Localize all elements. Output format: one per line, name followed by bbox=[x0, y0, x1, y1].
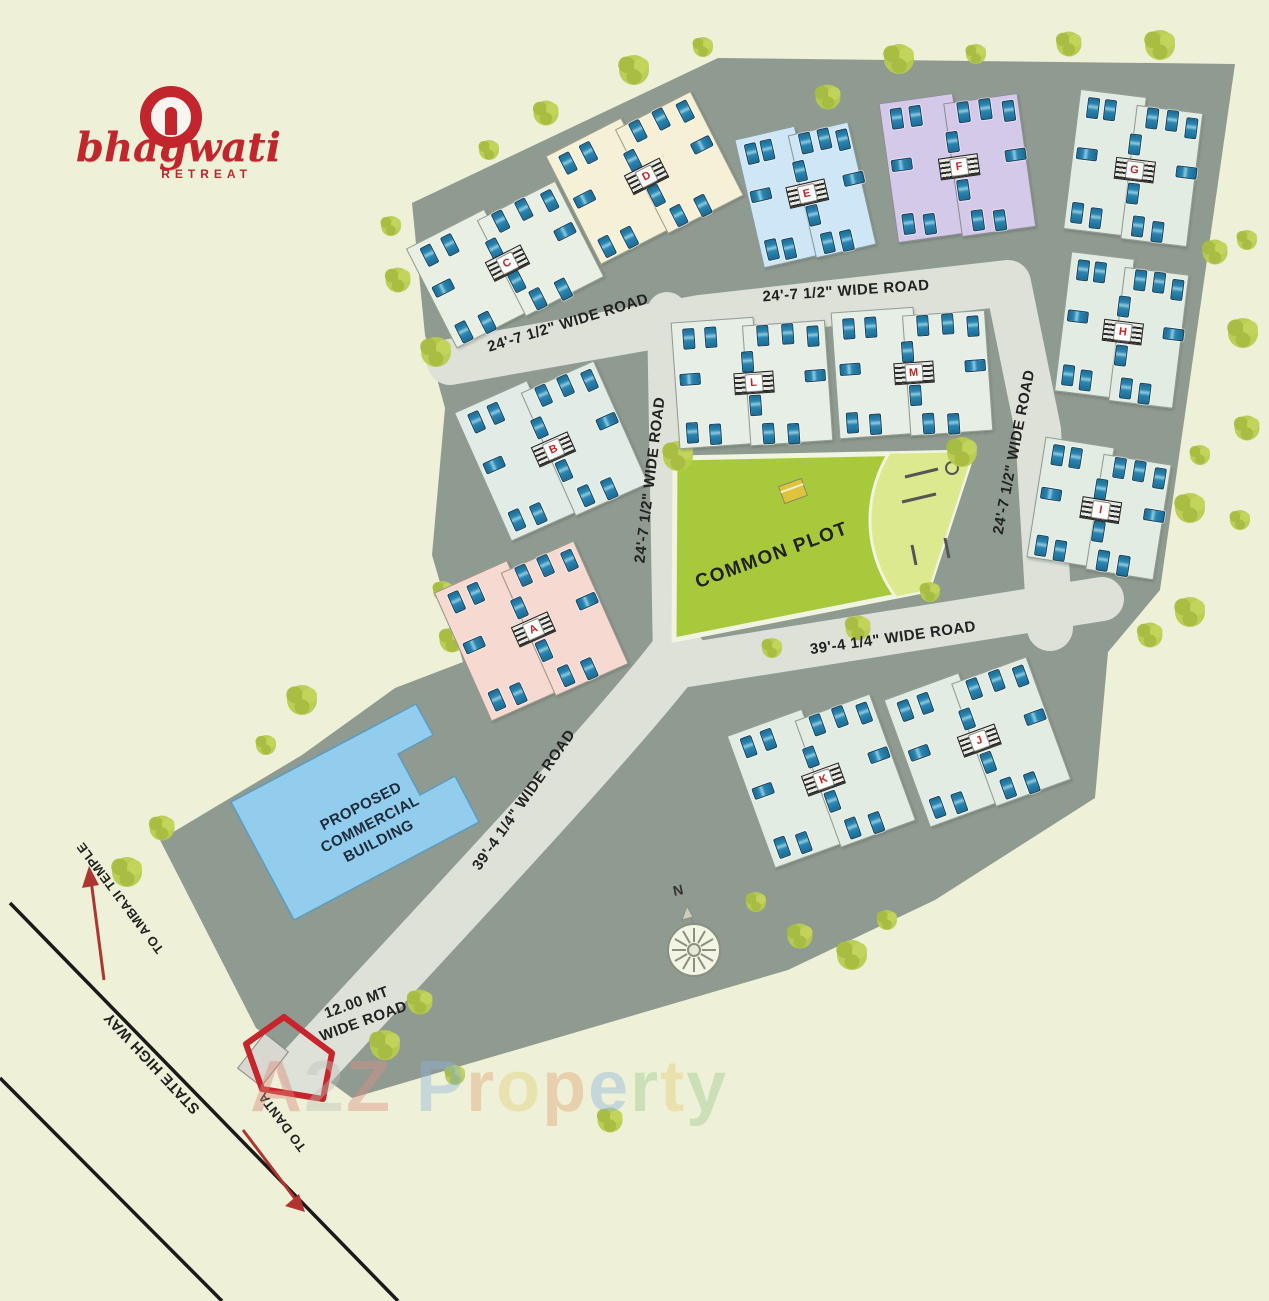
car-icon bbox=[1127, 133, 1141, 155]
tree-icon bbox=[385, 268, 411, 293]
building-L: L bbox=[670, 312, 834, 452]
car-icon bbox=[941, 313, 954, 335]
building-letter: G bbox=[1129, 163, 1139, 176]
building-letter: E bbox=[801, 186, 811, 199]
building-I: I bbox=[1026, 436, 1174, 580]
watermark: A2Z Property bbox=[250, 1046, 728, 1128]
tree-icon bbox=[1174, 597, 1205, 627]
car-icon bbox=[804, 369, 826, 382]
tree-icon bbox=[877, 910, 898, 930]
watermark-letter: p bbox=[542, 1046, 588, 1128]
car-icon bbox=[1143, 508, 1166, 523]
car-icon bbox=[1088, 207, 1102, 229]
car-icon bbox=[786, 423, 799, 445]
car-icon bbox=[1133, 269, 1147, 291]
watermark-letter: Z bbox=[346, 1046, 392, 1128]
car-icon bbox=[891, 157, 913, 172]
building-H: H bbox=[1054, 251, 1191, 410]
tree-icon bbox=[1190, 445, 1211, 465]
building-label-L: L bbox=[743, 373, 762, 392]
car-icon bbox=[1130, 215, 1144, 237]
site-plan-canvas: bhagwati RETREAT ABCDEFGHIJKLM 24'-7 1/2… bbox=[0, 0, 1269, 1301]
tree-icon bbox=[693, 37, 714, 57]
brand-logo-icon bbox=[140, 86, 202, 148]
car-icon bbox=[681, 327, 694, 349]
building-letter: H bbox=[1118, 325, 1127, 338]
building-letter: D bbox=[640, 168, 653, 182]
brand-logo: bhagwati RETREAT bbox=[76, 86, 266, 181]
car-icon bbox=[1149, 220, 1163, 242]
car-icon bbox=[1070, 201, 1084, 223]
tree-icon bbox=[1056, 32, 1082, 57]
tree-icon bbox=[479, 140, 500, 160]
building-F: F bbox=[879, 83, 1038, 246]
car-icon bbox=[1061, 364, 1075, 386]
car-icon bbox=[1164, 109, 1178, 131]
watermark-letter: e bbox=[588, 1046, 630, 1128]
car-icon bbox=[1175, 165, 1197, 179]
tree-icon bbox=[381, 216, 402, 236]
watermark-letter: r bbox=[630, 1046, 660, 1128]
car-icon bbox=[1078, 369, 1092, 391]
watermark-letter: r bbox=[466, 1046, 496, 1128]
tree-icon bbox=[256, 735, 277, 755]
building-label-G: G bbox=[1124, 159, 1144, 179]
building-label-F: F bbox=[949, 156, 969, 176]
car-icon bbox=[1040, 486, 1063, 501]
building-letter: M bbox=[908, 367, 918, 380]
car-icon bbox=[908, 384, 921, 406]
car-icon bbox=[703, 326, 716, 348]
building-letter: K bbox=[817, 772, 829, 786]
car-icon bbox=[756, 325, 769, 347]
car-icon bbox=[868, 413, 881, 435]
car-icon bbox=[678, 373, 700, 386]
car-icon bbox=[1085, 97, 1099, 119]
car-icon bbox=[1004, 147, 1026, 162]
car-icon bbox=[748, 394, 761, 416]
car-icon bbox=[761, 422, 774, 444]
watermark-letter: t bbox=[660, 1046, 686, 1128]
car-icon bbox=[1075, 146, 1097, 160]
tree-icon bbox=[618, 55, 649, 85]
watermark-letter: 2 bbox=[304, 1046, 346, 1128]
car-icon bbox=[838, 363, 860, 376]
watermark-letter: A bbox=[250, 1046, 304, 1128]
car-icon bbox=[1137, 382, 1151, 404]
car-icon bbox=[1117, 295, 1131, 317]
car-icon bbox=[845, 412, 858, 434]
car-icon bbox=[1102, 99, 1116, 121]
tree-icon bbox=[1227, 318, 1258, 348]
building-label-M: M bbox=[903, 363, 922, 382]
building-letter: J bbox=[974, 734, 984, 747]
building-label-I: I bbox=[1091, 499, 1112, 520]
car-icon bbox=[964, 359, 986, 372]
tree-icon bbox=[836, 940, 867, 970]
tree-icon bbox=[1144, 30, 1175, 60]
car-icon bbox=[781, 323, 794, 345]
car-icon bbox=[966, 315, 979, 337]
building-letter: I bbox=[1098, 503, 1103, 515]
car-icon bbox=[921, 412, 934, 434]
building-M: M bbox=[830, 302, 994, 442]
car-icon bbox=[708, 423, 721, 445]
tree-icon bbox=[1174, 493, 1205, 523]
tree-icon bbox=[286, 685, 317, 715]
car-icon bbox=[841, 317, 854, 339]
tree-icon bbox=[533, 101, 559, 126]
car-icon bbox=[863, 316, 876, 338]
building-G: G bbox=[1062, 88, 1204, 247]
tree-icon bbox=[1137, 623, 1163, 648]
car-icon bbox=[685, 422, 698, 444]
car-icon bbox=[1119, 377, 1133, 399]
car-icon bbox=[1066, 309, 1088, 323]
car-icon bbox=[916, 315, 929, 337]
building-letter: B bbox=[547, 441, 559, 455]
tree-icon bbox=[1237, 230, 1258, 250]
car-icon bbox=[901, 341, 914, 363]
tree-icon bbox=[149, 816, 175, 841]
building-label-E: E bbox=[795, 182, 817, 204]
building-label-H: H bbox=[1113, 321, 1133, 341]
building-letter: A bbox=[527, 621, 539, 635]
building-letter: C bbox=[500, 255, 513, 269]
car-icon bbox=[1125, 182, 1139, 204]
car-icon bbox=[1162, 326, 1184, 340]
watermark-letter: o bbox=[496, 1046, 542, 1128]
tree-icon bbox=[1234, 416, 1260, 441]
tree-icon bbox=[420, 337, 451, 367]
watermark-letter: y bbox=[686, 1046, 728, 1128]
watermark-letter: P bbox=[416, 1046, 466, 1128]
building-letter: L bbox=[749, 377, 757, 389]
car-icon bbox=[741, 351, 754, 373]
car-icon bbox=[1183, 116, 1197, 138]
car-icon bbox=[946, 413, 959, 435]
tree-icon bbox=[1230, 510, 1251, 530]
car-icon bbox=[806, 325, 819, 347]
building-letter: F bbox=[955, 159, 963, 172]
car-icon bbox=[1144, 107, 1158, 129]
